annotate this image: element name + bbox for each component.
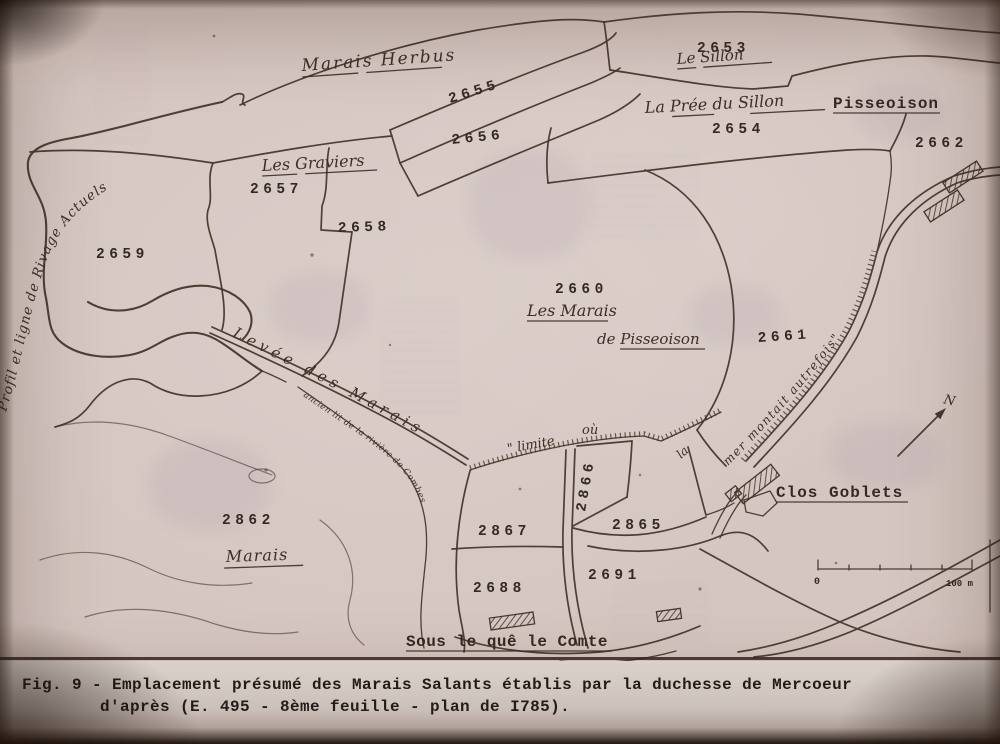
parcel-label-2865: 2865 [612, 518, 665, 534]
map-figure: N 0 100 m 2653 2654 2655 2656 2657 2658 … [0, 0, 1000, 744]
mer-montait-autrefois-label: mer montait autrefois" [720, 330, 843, 468]
caption-divider-rule [0, 657, 1000, 660]
caption-line-2: d'après (E. 495 - 8ème feuille - plan de… [100, 698, 570, 716]
hatched-building-icon [656, 608, 681, 621]
parcel-label-2658: 2658 [338, 219, 391, 237]
coastline-paths [28, 12, 1000, 371]
la-pree-du-sillon-label: La Prée du Sillon [643, 89, 825, 119]
sous-le-que-le-comte-label: Sous le quê le Comte [406, 633, 612, 651]
parcel-label-2660: 2660 [555, 282, 608, 298]
parcel-label-2659: 2659 [96, 247, 149, 263]
marais-label: Marais [223, 544, 303, 568]
bottom-parcels-paths [452, 441, 1000, 663]
svg-text:Profil et ligne de Rivage Actu: Profil et ligne de Rivage Actuels [0, 179, 110, 414]
scale-end-label: 100 m [946, 579, 974, 589]
parcel-label-2691: 2691 [588, 568, 641, 584]
levee-des-marais-label: Levée des Marais [229, 323, 428, 439]
parcel-label-2656: 2656 [451, 128, 505, 149]
hatched-building-icon [735, 464, 780, 503]
ou-label: où [582, 423, 598, 438]
svg-text:Levée des Marais: Levée des Marais [229, 323, 428, 439]
scale-bar: 0 100 m [814, 560, 974, 589]
parcel-label-2661: 2661 [757, 327, 811, 347]
svg-text:Clos Goblets: Clos Goblets [776, 484, 903, 502]
hatched-building-icon [489, 612, 534, 630]
parcel-label-2862: 2862 [222, 513, 275, 529]
svg-text:Pisseoison: Pisseoison [833, 95, 939, 113]
parcel-label-2688: 2688 [473, 581, 526, 597]
svg-text:de Pisseoison: de Pisseoison [597, 330, 700, 348]
parcel-label-2662: 2662 [915, 136, 968, 152]
caption-line-1: Fig. 9 - Emplacement présumé des Marais … [22, 676, 852, 694]
figure-caption: Fig. 9 - Emplacement présumé des Marais … [0, 661, 1000, 744]
hatched-building-icon [924, 190, 964, 222]
parcel-2660-boundary [645, 170, 734, 466]
clos-goblets-buildings [706, 464, 779, 538]
parcel-label-2655: 2655 [447, 77, 502, 108]
north-arrow: N [898, 392, 957, 456]
clos-goblets-label: Clos Goblets [776, 484, 908, 502]
limite-hatched-line [470, 114, 1000, 470]
photographed-page: N 0 100 m 2653 2654 2655 2656 2657 2658 … [0, 0, 1000, 744]
svg-text:Marais: Marais [224, 545, 288, 566]
les-graviers-label: Les Graviers [260, 150, 377, 176]
svg-text:Les Marais: Les Marais [526, 301, 617, 320]
hatched-building-icon [943, 161, 983, 193]
svg-text:Sous le quê le Comte: Sous le quê le Comte [406, 633, 608, 651]
la-label: la [674, 443, 692, 461]
les-marais-de-pisseoison-label: Les Marais de Pisseoison [526, 301, 705, 349]
pisseoison-label: Pisseoison [833, 95, 940, 113]
marais-herbus-label: Marais Herbus [300, 45, 457, 77]
profil-rivage-label: Profil et ligne de Rivage Actuels [0, 179, 110, 414]
parcel-label-2867: 2867 [478, 524, 531, 540]
scale-start-label: 0 [814, 577, 820, 588]
parcel-label-2654: 2654 [712, 122, 765, 138]
marsh-2862-paths [40, 286, 364, 645]
le-sillon-label: Le Sillon [675, 43, 772, 69]
parcel-label-2866: 2866 [574, 458, 599, 513]
svg-text:mer montait autrefois": mer montait autrefois" [720, 330, 843, 468]
north-label: N [941, 392, 957, 410]
parcel-label-2657: 2657 [250, 182, 303, 198]
coast-hook-squiggle [222, 94, 245, 105]
ink-specks [213, 35, 838, 591]
